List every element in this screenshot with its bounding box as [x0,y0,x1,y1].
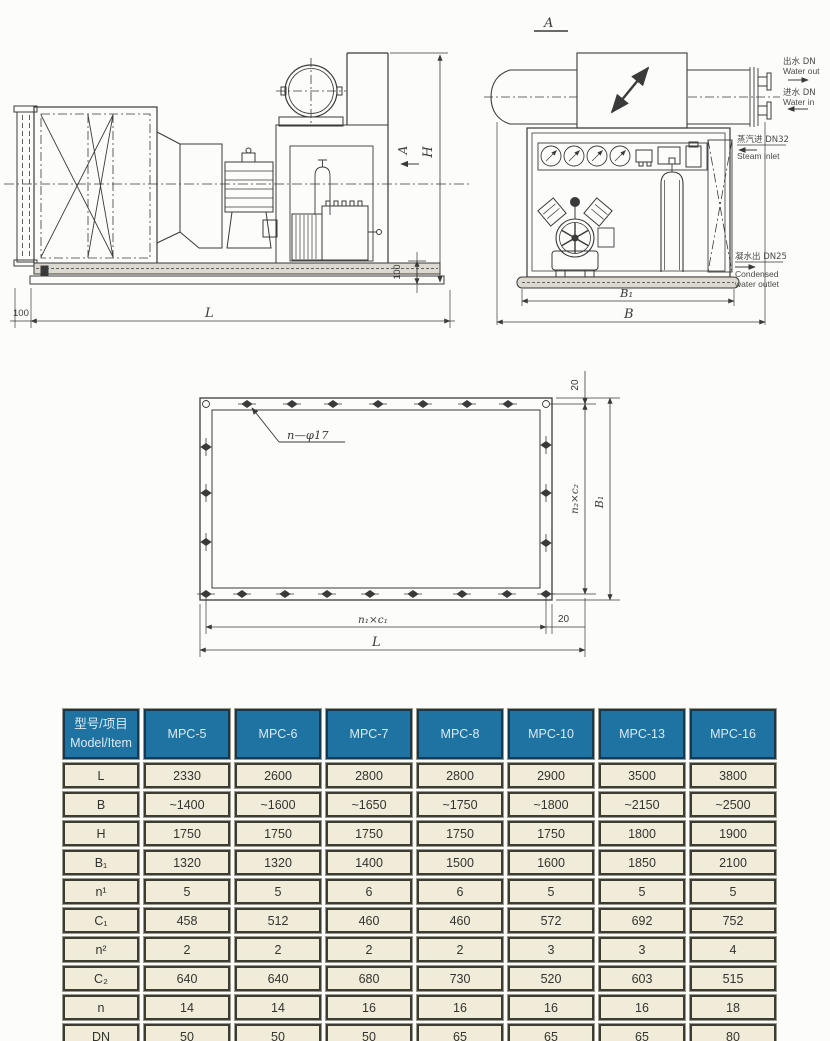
spec-cell: 50 [144,1024,230,1041]
bolt-holes [197,401,555,598]
model-column-header: MPC-10 [508,709,594,759]
spec-cell: 14 [144,995,230,1020]
dim-label-20-top: 20 [570,379,581,391]
spec-cell: 2330 [144,763,230,788]
row-label: L [63,763,139,788]
spec-cell: 752 [690,908,776,933]
spec-cell: 2100 [690,850,776,875]
spec-cell: 2600 [235,763,321,788]
spec-cell: 603 [599,966,685,991]
pressure-gauges [541,146,630,166]
spec-cell: 640 [144,966,230,991]
model-item-en: Model/Item [66,734,136,753]
spec-cell: 2800 [417,763,503,788]
spec-cell: 1850 [599,850,685,875]
row-label: C₁ [63,908,139,933]
row-label: DN [63,1024,139,1041]
compressor [538,198,614,278]
spec-cell: 520 [508,966,594,991]
dim-label-b: B [623,307,634,322]
spec-cell: 6 [326,879,412,904]
pipe-annotations: 出水 DN Water out 进水 DN Water in 蒸汽进 DN32 … [734,56,820,289]
model-column-header: MPC-16 [690,709,776,759]
dim-label-100-base: 100 [392,264,402,279]
spec-cell: 2 [326,937,412,962]
holes-label: n—φ17 [287,428,329,442]
water-out-label-en: Water out [783,66,820,76]
spec-cell: 5 [144,879,230,904]
spec-cell: 65 [508,1024,594,1041]
spec-cell: 5 [235,879,321,904]
cond-out-label-en2: water outlet [734,279,780,289]
row-label: n² [63,937,139,962]
spec-cell: 2 [144,937,230,962]
spec-cell: 50 [235,1024,321,1041]
spec-cell: 460 [326,908,412,933]
spec-cell: 1320 [235,850,321,875]
dim-label-l-flange: L [371,635,381,650]
model-item-header: 型号/项目 Model/Item [63,709,139,759]
table-row: n¹5566555 [63,879,776,904]
spec-cell: 1900 [690,821,776,846]
spec-cell: 5 [599,879,685,904]
spec-cell: 1750 [144,821,230,846]
spec-cell: 1750 [235,821,321,846]
spec-cell: 16 [417,995,503,1020]
table-row: n14141616161618 [63,995,776,1020]
spec-cell: 2800 [326,763,412,788]
spec-cell: 16 [599,995,685,1020]
spec-cell: 5 [508,879,594,904]
table-row: B₁1320132014001500160018502100 [63,850,776,875]
spec-cell: 515 [690,966,776,991]
table-row: DN50505065656580 [63,1024,776,1041]
flange-drawing: n—φ17 20 n₂×c₂ B₁ n₁×c₁ 20 L [0,355,830,690]
dim-label-b1: B₁ [619,286,633,300]
spec-cell: ~1800 [508,792,594,817]
row-label: n¹ [63,879,139,904]
spec-cell: 1600 [508,850,594,875]
model-column-header: MPC-13 [599,709,685,759]
side-view-drawing [4,53,472,328]
spec-cell: 80 [690,1024,776,1041]
dim-label-h: H [421,146,436,159]
spec-cell: 730 [417,966,503,991]
spec-cell: 3800 [690,763,776,788]
dim-label-a-arrow: A [396,145,410,155]
spec-cell: 3 [508,937,594,962]
spec-cell: 680 [326,966,412,991]
spec-cell: 4 [690,937,776,962]
spec-cell: ~2500 [690,792,776,817]
spec-cell: ~1650 [326,792,412,817]
spec-cell: 1750 [326,821,412,846]
spec-cell: 1400 [326,850,412,875]
spec-cell: 460 [417,908,503,933]
row-label: B [63,792,139,817]
model-column-header: MPC-6 [235,709,321,759]
steam-in-label-zh: 蒸汽进 DN32 [737,134,789,145]
spec-cell: 18 [690,995,776,1020]
catalog-page: A H 100 100 L A B₁ B 出水 DN Water out 进水 … [0,0,830,1041]
spec-cell: ~1400 [144,792,230,817]
cond-out-label-en1: Condensed [735,269,779,279]
spec-cell: 3500 [599,763,685,788]
model-column-header: MPC-8 [417,709,503,759]
table-row: L2330260028002800290035003800 [63,763,776,788]
spec-cell: 692 [599,908,685,933]
spec-cell: ~1600 [235,792,321,817]
model-column-header: MPC-7 [326,709,412,759]
model-column-header: MPC-5 [144,709,230,759]
row-label: n [63,995,139,1020]
spec-table-header-row: 型号/项目 Model/Item MPC-5MPC-6MPC-7MPC-8MPC… [63,709,776,759]
spec-cell: 5 [690,879,776,904]
spec-cell: 3 [599,937,685,962]
cond-out-label-zh: 凝水出 DN25 [735,251,787,262]
dim-label-n1c1: n₁×c₁ [358,614,388,626]
spec-cell: 65 [599,1024,685,1041]
top-drawings: A H 100 100 L A B₁ B 出水 DN Water out 进水 … [0,0,830,352]
spec-cell: 50 [326,1024,412,1041]
spec-cell: 2 [235,937,321,962]
spec-cell: 16 [508,995,594,1020]
table-row: H1750175017501750175018001900 [63,821,776,846]
spec-cell: ~1750 [417,792,503,817]
dim-label-20-bottom: 20 [558,614,570,625]
spec-cell: 512 [235,908,321,933]
table-row: C₂640640680730520603515 [63,966,776,991]
spec-cell: 1500 [417,850,503,875]
spec-cell: 65 [417,1024,503,1041]
section-title: A [543,16,553,31]
spec-cell: ~2150 [599,792,685,817]
spec-cell: 14 [235,995,321,1020]
dim-label-100-left: 100 [13,308,29,319]
steam-in-label-en: Steam inlet [737,151,780,161]
spec-cell: 2 [417,937,503,962]
spec-cell: 2900 [508,763,594,788]
water-in-label-en: Water in [783,97,815,107]
spec-cell: 1800 [599,821,685,846]
spec-cell: 640 [235,966,321,991]
table-row: C₁458512460460572692752 [63,908,776,933]
spec-cell: 1750 [417,821,503,846]
dim-label-l: L [204,306,214,321]
row-label: B₁ [63,850,139,875]
spec-cell: 458 [144,908,230,933]
spec-cell: 1750 [508,821,594,846]
dim-label-n2c2: n₂×c₂ [569,484,581,514]
table-row: B~1400~1600~1650~1750~1800~2150~2500 [63,792,776,817]
table-row: n²2222334 [63,937,776,962]
spec-cell: 6 [417,879,503,904]
dim-label-b1-flange: B₁ [593,496,606,510]
row-label: C₂ [63,966,139,991]
spec-cell: 1320 [144,850,230,875]
spec-cell: 16 [326,995,412,1020]
row-label: H [63,821,139,846]
spec-table: 型号/项目 Model/Item MPC-5MPC-6MPC-7MPC-8MPC… [58,705,781,1041]
spec-cell: 572 [508,908,594,933]
model-item-zh: 型号/项目 [66,715,136,734]
